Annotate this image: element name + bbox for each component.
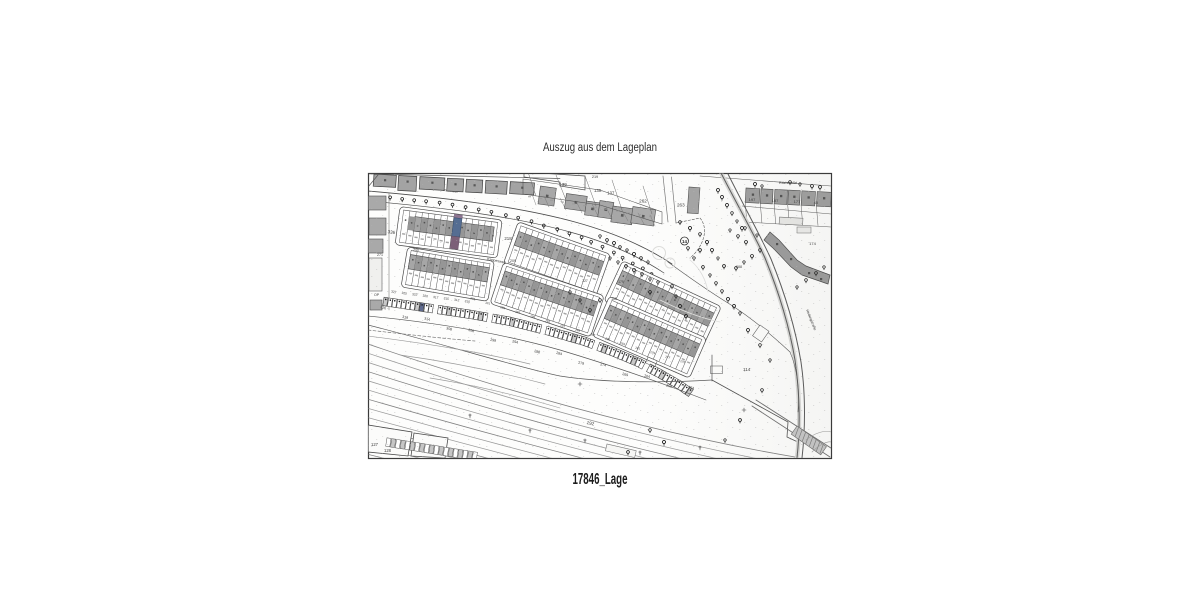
svg-text:Auszug aus dem Lageplan: Auszug aus dem Lageplan xyxy=(543,142,657,154)
svg-text:17846_Lage: 17846_Lage xyxy=(573,471,628,488)
